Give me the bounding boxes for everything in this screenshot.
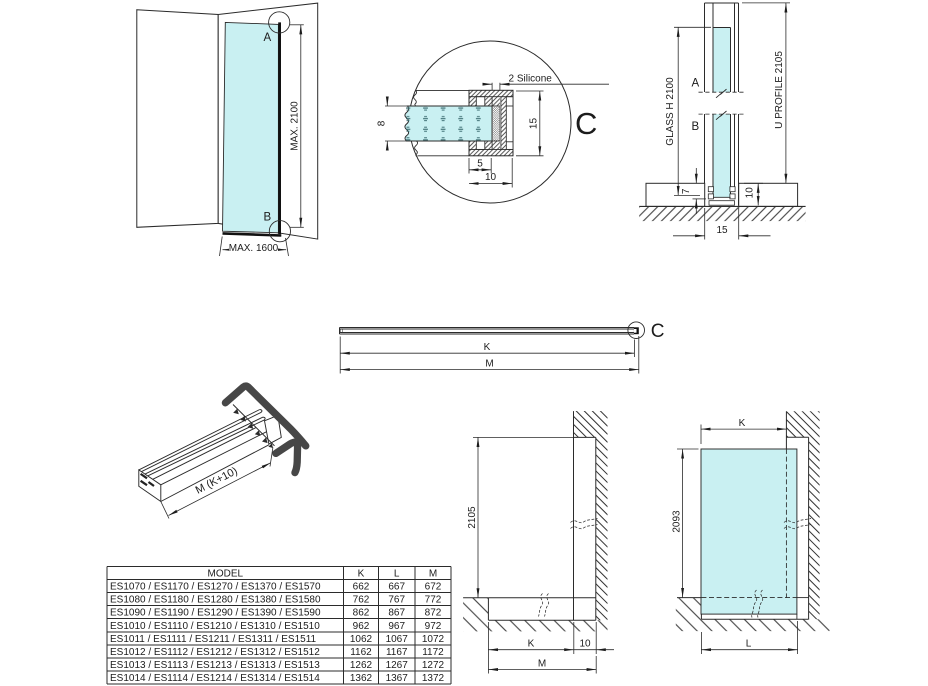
svg-text:762: 762 [353, 595, 370, 606]
svg-text:A: A [692, 78, 700, 90]
svg-text:ES1013 / ES1113 / ES1213 / ES1: ES1013 / ES1113 / ES1213 / ES1313 / ES15… [110, 660, 320, 671]
svg-text:ES1011 / ES1111 / ES1211 / ES1: ES1011 / ES1111 / ES1211 / ES1311 / ES15… [110, 634, 317, 645]
svg-text:B: B [264, 212, 272, 224]
svg-text:772: 772 [425, 595, 442, 606]
svg-text:862: 862 [353, 608, 370, 619]
svg-text:A: A [264, 32, 272, 44]
svg-text:1162: 1162 [350, 647, 372, 658]
svg-text:C: C [575, 106, 597, 141]
svg-text:872: 872 [425, 608, 442, 619]
svg-text:1172: 1172 [422, 647, 444, 658]
svg-text:962: 962 [353, 621, 370, 632]
svg-text:ES1090 / ES1190 / ES1290 / ES1: ES1090 / ES1190 / ES1290 / ES1390 / ES15… [110, 608, 321, 619]
svg-text:1267: 1267 [386, 660, 409, 671]
svg-text:1362: 1362 [350, 673, 373, 684]
svg-text:10: 10 [744, 187, 755, 199]
svg-text:1372: 1372 [422, 673, 445, 684]
svg-text:1067: 1067 [386, 634, 409, 645]
svg-text:5: 5 [477, 159, 483, 170]
svg-text:L: L [394, 568, 400, 579]
svg-text:667: 667 [388, 582, 405, 593]
svg-text:2105: 2105 [467, 506, 478, 529]
svg-text:7: 7 [681, 188, 692, 194]
svg-text:MAX. 2100: MAX. 2100 [289, 101, 300, 151]
svg-text:L: L [746, 639, 752, 650]
svg-text:10: 10 [579, 639, 591, 650]
svg-text:15: 15 [529, 118, 540, 130]
svg-text:M: M [429, 568, 437, 579]
svg-text:767: 767 [388, 595, 405, 606]
svg-text:672: 672 [425, 582, 442, 593]
svg-text:GLASS H 2100: GLASS H 2100 [665, 77, 676, 146]
svg-text:1262: 1262 [350, 660, 373, 671]
svg-text:1167: 1167 [386, 647, 408, 658]
svg-text:C: C [651, 321, 665, 342]
svg-text:1367: 1367 [386, 673, 409, 684]
svg-text:M: M [485, 358, 493, 369]
svg-text:K: K [739, 418, 746, 429]
svg-text:967: 967 [388, 621, 405, 632]
svg-text:1062: 1062 [350, 634, 373, 645]
svg-text:K: K [528, 639, 535, 650]
svg-text:867: 867 [388, 608, 405, 619]
svg-text:ES1080 / ES1180 / ES1280 / ES1: ES1080 / ES1180 / ES1280 / ES1380 / ES15… [110, 595, 321, 606]
svg-text:MAX. 1600: MAX. 1600 [229, 243, 279, 254]
svg-text:972: 972 [425, 621, 442, 632]
svg-text:1072: 1072 [422, 634, 445, 645]
svg-text:2 Silicone: 2 Silicone [509, 74, 553, 85]
svg-text:M: M [538, 658, 546, 669]
svg-text:ES1012 / ES1112 / ES1212 / ES1: ES1012 / ES1112 / ES1212 / ES1312 / ES15… [110, 647, 320, 658]
svg-text:B: B [692, 121, 700, 133]
svg-text:K: K [484, 342, 491, 353]
svg-text:10: 10 [485, 172, 497, 183]
svg-text:K: K [358, 568, 365, 579]
svg-text:U PROFILE 2105: U PROFILE 2105 [774, 51, 785, 129]
svg-text:2093: 2093 [672, 510, 683, 533]
svg-text:ES1070 / ES1170 / ES1270 / ES1: ES1070 / ES1170 / ES1270 / ES1370 / ES15… [110, 582, 321, 593]
svg-text:MODEL: MODEL [208, 568, 244, 579]
svg-text:1272: 1272 [422, 660, 445, 671]
svg-text:8: 8 [376, 120, 387, 126]
svg-text:ES1014 / ES1114 / ES1214 / ES1: ES1014 / ES1114 / ES1214 / ES1314 / ES15… [110, 673, 320, 684]
svg-text:15: 15 [716, 225, 728, 236]
svg-text:ES1010 / ES1110 / ES1210 / ES1: ES1010 / ES1110 / ES1210 / ES1310 / ES15… [110, 621, 320, 632]
svg-text:662: 662 [353, 582, 370, 593]
